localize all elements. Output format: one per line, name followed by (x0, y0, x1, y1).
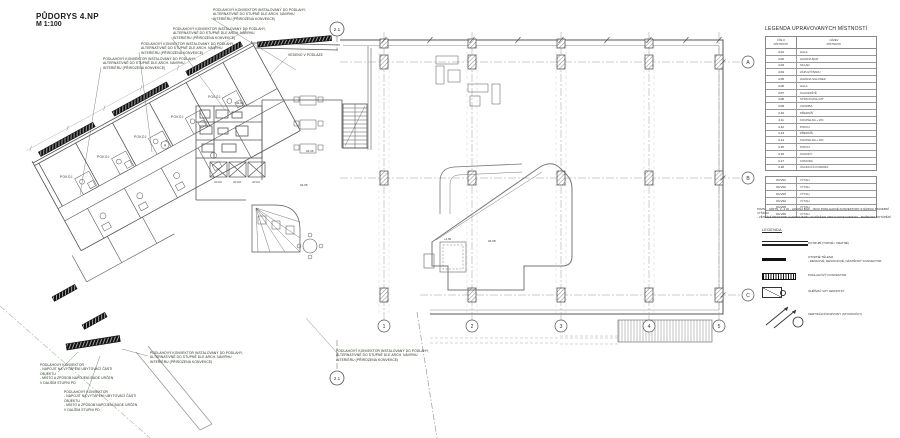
room-name: HALA (797, 84, 874, 88)
grid-bubbles (378, 56, 754, 332)
elevator-name: VÝTAH (797, 185, 874, 189)
symbol-label: POTRUBÍ (TOPNÉ / VRATNÉ) (808, 242, 849, 246)
room-number: 4.16 (766, 151, 797, 157)
elevator-name: VÝTAH (797, 178, 874, 182)
room-name: HAVANA BAR (797, 57, 874, 61)
core-block (196, 56, 500, 259)
room-number: 4.12 (766, 124, 797, 130)
note-block: POZN.: - MÍSTN. Č. 4.02 - HAVANA BAR - J… (757, 207, 897, 219)
radiator-icon (762, 255, 808, 265)
grid-col-5: 5 (718, 324, 721, 330)
floor-convector-strip-south (66, 336, 120, 350)
room-number: 4.09 (766, 103, 797, 109)
elevator-legend-row: 04.V04 VÝTAH (766, 198, 876, 205)
room-number: 4.01 (766, 49, 797, 55)
structural-grid (340, 32, 742, 332)
symbol-label: PODLAHOVÝ KONVEKTOR (808, 274, 846, 278)
room-legend-row: 4.08 STROJOVNA VZT (766, 97, 876, 104)
room-legend-row: 4.17 KOMORA (766, 158, 876, 165)
lift-label-2: 04.V03 (233, 181, 241, 184)
grid-col-2: 2 (471, 324, 474, 330)
elevation-label: +4,05 (444, 237, 452, 241)
room-legend-row: 4.16 SCHODY (766, 151, 876, 158)
page-title: PŮDORYS 4.NP (36, 12, 99, 21)
room-legend-rows: 4.01 HALA 4.02 HAVANA BAR 4.03 SKLAD 4.0… (766, 49, 876, 170)
room-number: 4.11 (766, 117, 797, 123)
symbol-label: OHŘÍVAČ VZT JEDNOTKY (808, 290, 845, 294)
hotel-wing (17, 28, 317, 282)
pipes-icon (762, 239, 808, 249)
symbol-label: OTOPNÉ TĚLESO - DESKOVÉ, DESIGNOVÉ, NÁST… (808, 256, 881, 264)
room-name: KOMORA (797, 159, 874, 163)
room-legend-row: 4.04 ZÁPULTÍ BARU (766, 69, 876, 76)
grid-row-c: C (746, 293, 750, 299)
room-name: HAVANA SALONEK (797, 77, 874, 81)
floor-convector-icon (762, 271, 808, 281)
room-number: 4.13 (766, 131, 797, 137)
room-name: PŘEDSÍŇ (797, 131, 874, 135)
room-legend-row: 4.01 HALA (766, 49, 876, 56)
lift-label-3: 04.V01 (252, 181, 260, 184)
room-legend-row: 4.14 KOUPELNA + WC (766, 137, 876, 144)
room-legend-row: 4.02 HAVANA BAR (766, 56, 876, 63)
room-number: 4.04 (766, 69, 797, 75)
vzt-heater-icon (762, 287, 808, 297)
col-room-number: ČÍSLO MÍSTNOSTI (766, 37, 797, 48)
grid-col-4: 4 (648, 324, 651, 330)
room-name: POKOJ (797, 145, 874, 149)
room-legend-row: 4.11 KOUPELNA + WC (766, 117, 876, 124)
room-legend-row: 4.06 HALA (766, 83, 876, 90)
section-marker: 2.1 2.1 (330, 22, 344, 385)
room-number: 4.15 (766, 144, 797, 150)
room-name: SKLAD (797, 63, 874, 67)
room-pokoj-label-4: POKOJ (171, 115, 184, 119)
room-number: 4.10 (766, 110, 797, 116)
room-name: CHODBA (797, 104, 874, 108)
risers-icon (762, 303, 808, 327)
elevator-legend-row: 04.V03 VÝTAH (766, 191, 876, 198)
room-name: STROJOVNA VZT (797, 97, 874, 101)
room-legend-row: 4.13 PŘEDSÍŇ (766, 131, 876, 138)
elevator-number: 04.V04 (766, 198, 797, 204)
room-pokoj-label-2: POKOJ (97, 155, 110, 159)
room-pokoj-label-3: POKOJ (134, 135, 147, 139)
room-name: KOUPELNA + WC (797, 138, 874, 142)
room-number: 4.14 (766, 137, 797, 143)
room-pokoj-label-1: POKOJ (60, 175, 73, 179)
room-name: POKOJ (797, 125, 874, 129)
floor-convector-strip-top (257, 36, 331, 47)
grid-col-3: 3 (560, 324, 563, 330)
room-0408-label: 04.08 (488, 239, 496, 243)
room-legend-row: 4.05 HAVANA SALONEK (766, 76, 876, 83)
room-number: 4.18 (766, 165, 797, 171)
room-legend-header: ČÍSLO MÍSTNOSTI NÁZEV MÍSTNOSTI (766, 37, 876, 49)
elevator-name: VÝTAH (797, 192, 874, 196)
room-legend-title: LEGENDA UPRAVOVANÝCH MÍSTNOSTÍ (765, 26, 877, 32)
room-number: 4.02 (766, 56, 797, 62)
room-legend-row: 4.10 PŘEDSÍŇ (766, 110, 876, 117)
room-name: ZÁPULTÍ BARU (797, 70, 874, 74)
room-number: 4.17 (766, 158, 797, 164)
grid-col-1: 1 (383, 324, 386, 330)
drawing-sheet: A B C 1 2 3 4 5 2.1 2.1 +4,05 04.08 (0, 0, 900, 438)
room-legend-row: 4.18 ÚKLIDOVÁ KOMORA (766, 165, 876, 171)
roof-terrace (0, 40, 723, 438)
section-label-bottom: 2.1 (334, 376, 341, 381)
room-legend: LEGENDA UPRAVOVANÝCH MÍSTNOSTÍ ČÍSLO MÍS… (765, 26, 877, 218)
room-legend-row: 4.15 POKOJ (766, 144, 876, 151)
elevator-legend-row: 04.V01 VÝTAH (766, 177, 876, 184)
col-room-name: NÁZEV MÍSTNOSTI (797, 37, 871, 48)
dimension-ticks (382, 37, 726, 298)
room-number: 4.06 (766, 83, 797, 89)
south-ramp (136, 346, 212, 430)
elevator-legend-row: 04.V02 VÝTAH (766, 184, 876, 191)
section-label-top: 2.1 (334, 27, 341, 32)
lift-label-1: 04.V02 (214, 181, 222, 184)
vzt-room-outline (424, 164, 572, 290)
elevator-number: 04.V03 (766, 191, 797, 197)
room-number: 4.08 (766, 97, 797, 103)
room-legend-row: 4.09 CHODBA (766, 103, 876, 110)
room-name: SCHODIŠTĚ (797, 91, 874, 95)
scale-label: M 1:100 (36, 21, 99, 28)
room-legend-row: 4.07 SCHODIŠTĚ (766, 90, 876, 97)
room-name: ÚKLIDOVÁ KOMORA (797, 165, 874, 169)
room-number: 4.05 (766, 76, 797, 82)
symbol-legend-title: LEGENDA (762, 228, 898, 232)
symbol-label: VERTIKÁLNÍ ROZVODY (STOUPAČKY) (808, 313, 862, 317)
floor-convector-strip-sw1 (52, 284, 77, 301)
room-name: PŘEDSÍŇ (797, 111, 874, 115)
room-name: SCHODY (797, 152, 874, 156)
room-name: HALA (797, 50, 874, 54)
columns (380, 39, 723, 302)
room-name: KOUPELNA + WC (797, 118, 874, 122)
room-number: 4.03 (766, 63, 797, 69)
room-legend-row: 4.12 POKOJ (766, 124, 876, 131)
floor-convector-strip-sw2 (82, 312, 107, 329)
elevator-number: 04.V02 (766, 184, 797, 190)
elevator-number: 04.V01 (766, 177, 797, 183)
room-0405-label: 04.05 (300, 183, 308, 187)
symbol-legend: LEGENDA POTRUBÍ (TOPNÉ / VRATNÉ) OTOPNÉ … (762, 228, 898, 333)
room-0406-label: 04.06 (306, 149, 314, 153)
drawing-title: PŮDORYS 4.NP M 1:100 (36, 12, 99, 28)
room-legend-row: 4.03 SKLAD (766, 63, 876, 70)
elevator-name: VÝTAH (797, 199, 874, 203)
room-number: 4.07 (766, 90, 797, 96)
